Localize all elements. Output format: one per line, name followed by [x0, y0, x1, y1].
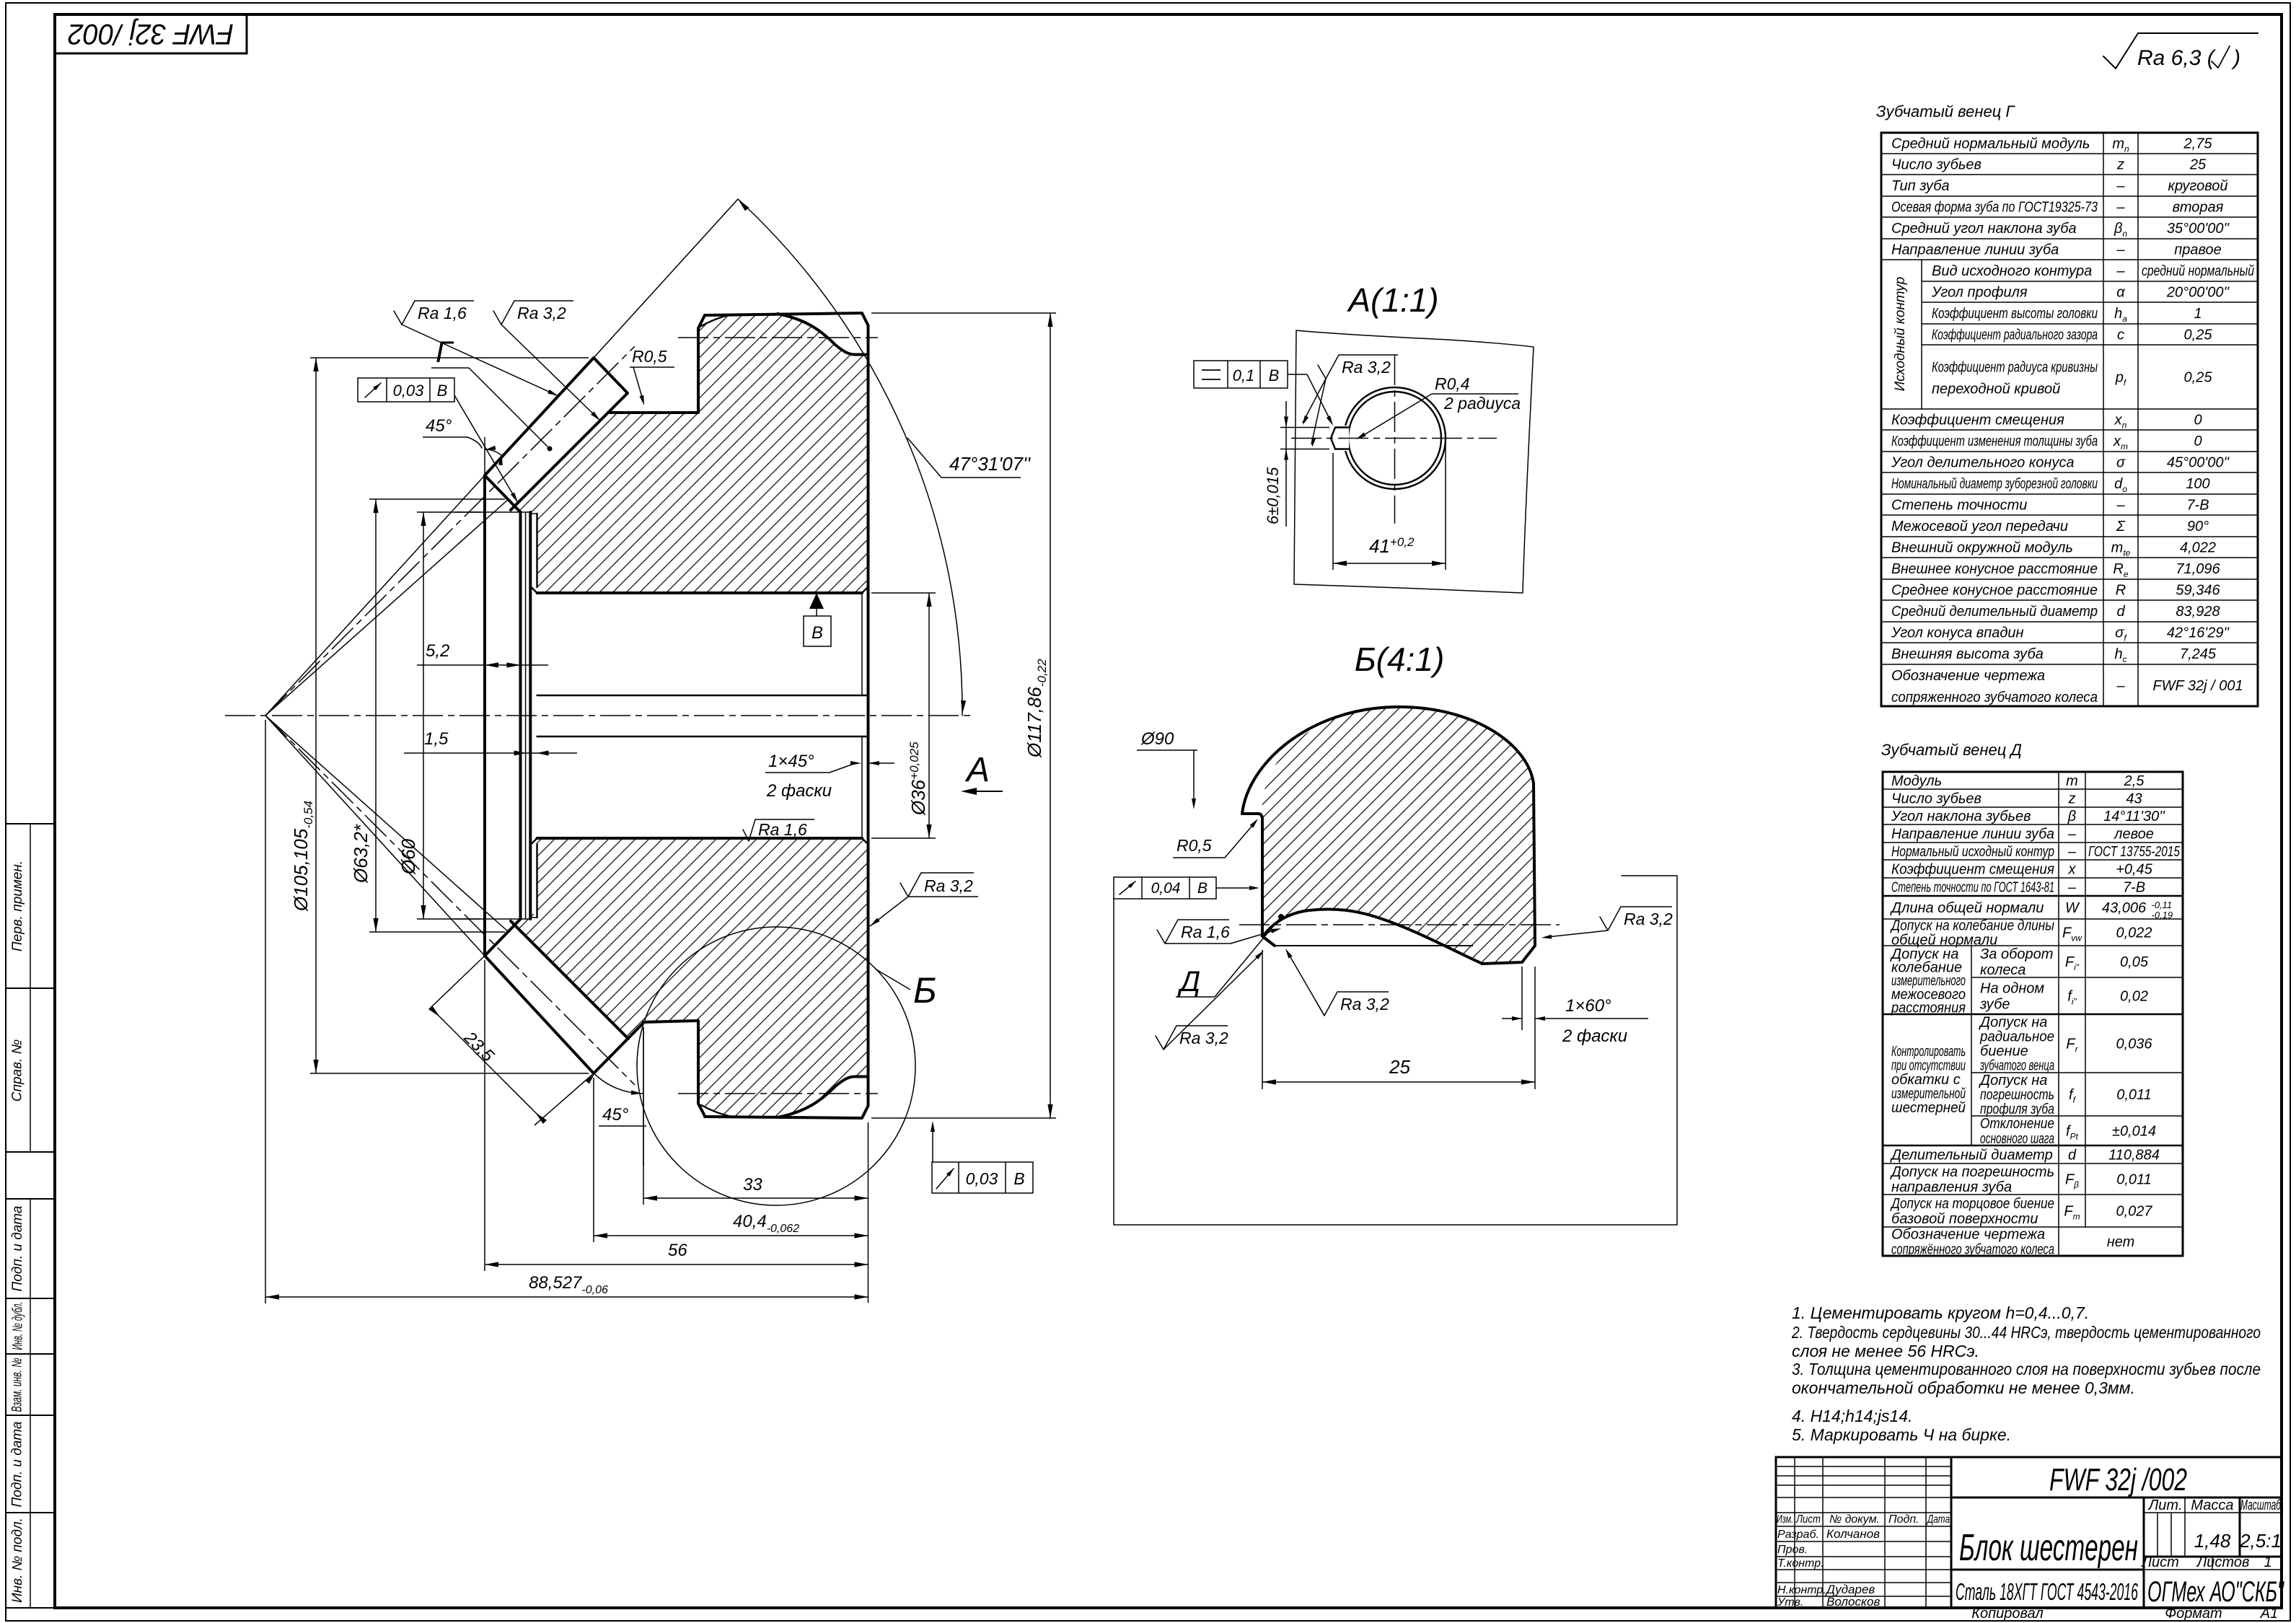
svg-text:45°00'00'': 45°00'00'' — [2167, 455, 2230, 471]
svg-text:Ra 3,2: Ra 3,2 — [1340, 995, 1389, 1013]
svg-text:Допуск на колебание длины: Допуск на колебание длины — [1890, 918, 2054, 934]
svg-text:0,02: 0,02 — [2120, 989, 2148, 1005]
svg-text:Ø90: Ø90 — [1140, 729, 1174, 749]
svg-text:-0,19: -0,19 — [2152, 910, 2173, 920]
svg-text:Ra 1,6: Ra 1,6 — [1181, 923, 1230, 941]
svg-text:FWF 32j / 001: FWF 32j / 001 — [2152, 678, 2243, 694]
svg-text:зубчатого венца: зубчатого венца — [1979, 1058, 2054, 1074]
svg-text:Коэффициент высоты головки: Коэффициент высоты головки — [1932, 306, 2098, 322]
svg-text:43: 43 — [2126, 791, 2142, 807]
svg-text:биение: биение — [1980, 1044, 2028, 1060]
svg-text:2. Твердость сердцевины 30...4: 2. Твердость сердцевины 30...44 HRCэ, тв… — [1791, 1323, 2261, 1342]
svg-text:В: В — [1013, 1169, 1024, 1188]
svg-text:100: 100 — [2186, 476, 2209, 492]
svg-text:Направление линии зуба: Направление линии зуба — [1891, 242, 2059, 258]
svg-text:Н.контр.: Н.контр. — [1777, 1584, 1826, 1596]
svg-text:Колчанов: Колчанов — [1826, 1527, 1880, 1541]
svg-text:6±0,015: 6±0,015 — [1264, 467, 1282, 524]
svg-text:Д: Д — [1177, 966, 1200, 998]
svg-text:–: – — [2067, 827, 2077, 843]
svg-text:Ra 3,2: Ra 3,2 — [1179, 1029, 1228, 1047]
svg-text:нет: нет — [2107, 1234, 2135, 1250]
svg-text:47°31'07'': 47°31'07'' — [949, 453, 1031, 475]
svg-text:25: 25 — [2189, 157, 2207, 173]
svg-text:1,48: 1,48 — [2194, 1530, 2231, 1552]
svg-text:Средний угол наклона зуба: Средний угол наклона зуба — [1891, 221, 2077, 237]
svg-text:90°: 90° — [2187, 519, 2209, 535]
svg-text:Коэффициент радиуса кривизны: Коэффициент радиуса кривизны — [1932, 360, 2098, 376]
svg-text:Средний нормальный модуль: Средний нормальный модуль — [1891, 136, 2090, 152]
svg-text:Коэффициент смещения: Коэффициент смещения — [1891, 413, 2064, 428]
svg-text:33: 33 — [743, 1175, 762, 1195]
svg-text:основного шага: основного шага — [1980, 1131, 2054, 1147]
svg-text:1,5: 1,5 — [424, 729, 449, 749]
svg-text:Допуск на торцовое биение: Допуск на торцовое биение — [1890, 1196, 2054, 1212]
svg-text:профиля зуба: профиля зуба — [1980, 1101, 2054, 1117]
svg-text:4. H14;h14;js14.: 4. H14;h14;js14. — [1792, 1407, 1913, 1425]
svg-text:0: 0 — [2194, 413, 2202, 428]
svg-text:В: В — [1269, 366, 1280, 384]
svg-text:–: – — [2116, 263, 2125, 279]
svg-text:42°16'29'': 42°16'29'' — [2167, 625, 2230, 641]
svg-text:45°: 45° — [602, 1105, 629, 1125]
svg-text:43,006: 43,006 — [2102, 900, 2147, 916]
svg-text:m: m — [2066, 773, 2078, 789]
svg-text:7-В: 7-В — [2123, 880, 2145, 896]
svg-text:шестерней: шестерней — [1891, 1100, 1966, 1116]
svg-text:σ: σ — [2116, 455, 2126, 471]
svg-text:Внешний окружной модуль: Внешний окружной модуль — [1891, 540, 2073, 556]
svg-text:Число зубьев: Число зубьев — [1891, 157, 1981, 173]
svg-text:R: R — [2116, 583, 2126, 599]
svg-text:0,036: 0,036 — [2116, 1037, 2152, 1052]
svg-text:Листов: Листов — [2196, 1554, 2250, 1570]
svg-text:Длина общей нормали: Длина общей нормали — [1890, 900, 2044, 916]
svg-text:Взам. инв. №: Взам. инв. № — [10, 1358, 25, 1412]
svg-text:Формат: Формат — [2165, 1606, 2222, 1622]
svg-text:–: – — [2116, 678, 2125, 694]
svg-text:колеса: колеса — [1980, 962, 2026, 978]
svg-text:d: d — [2116, 604, 2125, 620]
svg-text:Осевая форма зуба по ГОСТ19325: Осевая форма зуба по ГОСТ19325-73 — [1891, 200, 2098, 216]
svg-text:слоя не менее 56 HRCэ.: слоя не менее 56 HRCэ. — [1792, 1342, 1979, 1360]
svg-text:Разраб.: Разраб. — [1777, 1529, 1819, 1541]
svg-text:Инв. № дубл.: Инв. № дубл. — [11, 1302, 26, 1350]
svg-text:Ra 3,2: Ra 3,2 — [1342, 358, 1391, 377]
svg-text:0,04: 0,04 — [1151, 880, 1181, 897]
svg-text:ГОСТ 13755-2015: ГОСТ 13755-2015 — [2088, 844, 2181, 860]
svg-text:1: 1 — [2194, 306, 2202, 322]
svg-text:20°00'00'': 20°00'00'' — [2166, 285, 2230, 301]
svg-text:x: x — [2068, 862, 2077, 878]
svg-text:Внешнее конусное расстояние: Внешнее конусное расстояние — [1891, 561, 2098, 577]
svg-text:сопряжённого зубчатого колеса: сопряжённого зубчатого колеса — [1891, 1242, 2054, 1258]
svg-text:0,011: 0,011 — [2116, 1172, 2152, 1188]
svg-text:Модуль: Модуль — [1891, 773, 1942, 789]
svg-text:Угол наклона зубьев: Угол наклона зубьев — [1891, 809, 2031, 824]
svg-text:FWF 32j /002: FWF 32j /002 — [68, 18, 234, 50]
svg-text:Ra 1,6: Ra 1,6 — [758, 820, 807, 839]
svg-text:расстояния: расстояния — [1891, 1000, 1966, 1016]
svg-text:А: А — [964, 751, 990, 789]
svg-text:1×60°: 1×60° — [1565, 996, 1611, 1016]
svg-text:R0,5: R0,5 — [1176, 836, 1212, 855]
svg-text:0,1: 0,1 — [1233, 366, 1255, 384]
svg-text:Ra 3,2: Ra 3,2 — [517, 304, 566, 322]
svg-text:Коэффициент смещения: Коэффициент смещения — [1891, 862, 2054, 878]
svg-text:Волосков: Волосков — [1826, 1595, 1880, 1609]
svg-text:7,245: 7,245 — [2180, 646, 2217, 662]
svg-text:0: 0 — [2194, 434, 2202, 449]
svg-text:Ra 3,2: Ra 3,2 — [1624, 910, 1673, 928]
svg-text:Угол профиля: Угол профиля — [1931, 285, 2028, 301]
svg-text:На одном: На одном — [1980, 981, 2044, 997]
svg-text:В: В — [437, 382, 448, 400]
svg-text:83,928: 83,928 — [2176, 604, 2220, 620]
svg-text:окончательной обработки не мен: окончательной обработки не менее 0,3мм. — [1792, 1378, 2135, 1397]
svg-text:Коэффициент изменения толщины: Коэффициент изменения толщины зуба — [1891, 434, 2098, 449]
svg-text:2 фаски: 2 фаски — [766, 781, 832, 801]
svg-text:110,884: 110,884 — [2108, 1148, 2160, 1164]
svg-text:–: – — [2116, 498, 2125, 514]
svg-text:Ra 1,6: Ra 1,6 — [418, 304, 467, 322]
svg-text:Зубчатый венец Д: Зубчатый венец Д — [1881, 741, 2022, 759]
svg-text:Σ: Σ — [2116, 519, 2126, 535]
svg-text:Дата: Дата — [1927, 1513, 1950, 1526]
svg-text:Справ. №: Справ. № — [10, 1039, 25, 1101]
svg-text:Межосевой угол передачи: Межосевой угол передачи — [1891, 519, 2068, 535]
svg-text:0,027: 0,027 — [2116, 1204, 2152, 1220]
svg-text:α: α — [2116, 285, 2125, 301]
svg-text:Исходный контур: Исходный контур — [1893, 277, 1908, 392]
svg-text:За оборот: За оборот — [1980, 946, 2053, 962]
svg-text:5. Маркировать Ч на бирке.: 5. Маркировать Ч на бирке. — [1792, 1425, 2011, 1444]
svg-text:Т.контр.: Т.контр. — [1777, 1557, 1824, 1570]
svg-text:1×45°: 1×45° — [768, 752, 814, 771]
svg-text:Вид исходного контура: Вид исходного контура — [1932, 263, 2092, 279]
svg-text:0,25: 0,25 — [2184, 370, 2213, 386]
svg-text:Ø63,2*: Ø63,2* — [350, 824, 371, 884]
svg-text:β: β — [2067, 809, 2076, 824]
svg-text:25: 25 — [1389, 1056, 1410, 1078]
svg-text:Число зубьев: Число зубьев — [1891, 791, 1981, 807]
svg-text:Степень точности: Степень точности — [1891, 498, 2027, 514]
svg-text:Угол делительного конуса: Угол делительного конуса — [1891, 455, 2074, 471]
svg-text:59,346: 59,346 — [2176, 583, 2220, 599]
svg-text:базовой поверхности: базовой поверхности — [1891, 1211, 2038, 1227]
svg-text:0,03: 0,03 — [966, 1169, 998, 1188]
svg-text:А1: А1 — [2260, 1606, 2278, 1622]
svg-text:0,03: 0,03 — [393, 382, 425, 400]
svg-text:FWF 32j /002: FWF 32j /002 — [2049, 1462, 2187, 1497]
svg-text:2 радиуса: 2 радиуса — [1443, 394, 1521, 413]
svg-text:56: 56 — [668, 1241, 687, 1260]
svg-text:погрешность: погрешность — [1980, 1087, 2054, 1103]
svg-text:W: W — [2065, 900, 2080, 916]
svg-text:Зубчатый венец Г: Зубчатый венец Г — [1876, 102, 2015, 120]
svg-text:0,022: 0,022 — [2116, 925, 2152, 941]
svg-text:В: В — [811, 623, 823, 643]
svg-text:7-В: 7-В — [2186, 498, 2209, 514]
svg-text:1. Цементировать кругом h=0,4.: 1. Цементировать кругом h=0,4...0,7. — [1792, 1303, 2089, 1322]
svg-text:Перв. примен.: Перв. примен. — [10, 861, 25, 951]
svg-text:Ø60: Ø60 — [397, 838, 419, 875]
svg-text:Обозначение чертежа: Обозначение чертежа — [1891, 1227, 2045, 1243]
svg-text:Делительный диаметр: Делительный диаметр — [1890, 1148, 2053, 1164]
svg-text:0,05: 0,05 — [2120, 954, 2149, 970]
svg-text:z: z — [2116, 157, 2124, 173]
svg-text:d: d — [2068, 1148, 2077, 1164]
svg-text:Направление линии зуба: Направление линии зуба — [1891, 827, 2054, 843]
svg-text:c: c — [2117, 327, 2124, 343]
svg-text:переходной кривой: переходной кривой — [1932, 382, 2060, 397]
svg-text:z: z — [2068, 791, 2076, 807]
svg-text:–: – — [2116, 242, 2125, 258]
svg-text:14°11'30'': 14°11'30'' — [2103, 809, 2165, 824]
svg-text:Масса: Масса — [2191, 1497, 2233, 1513]
svg-text:сопряженного зубчатого колеса: сопряженного зубчатого колеса — [1891, 690, 2098, 705]
svg-text:–: – — [2067, 844, 2077, 860]
svg-text:0,25: 0,25 — [2184, 327, 2213, 343]
svg-text:В: В — [1197, 880, 1208, 897]
svg-text:Б: Б — [913, 970, 937, 1011]
svg-text:±0,014: ±0,014 — [2112, 1124, 2156, 1140]
svg-text:Лист: Лист — [1795, 1513, 1821, 1526]
svg-text:ОГМех АО"СКБ": ОГМех АО"СКБ" — [2147, 1576, 2284, 1608]
svg-text:+0,45: +0,45 — [2116, 862, 2152, 878]
svg-text:0,011: 0,011 — [2116, 1087, 2152, 1103]
svg-text:А(1:1): А(1:1) — [1346, 281, 1438, 319]
svg-text:Допуск на погрешность: Допуск на погрешность — [1890, 1164, 2054, 1180]
svg-text:Ra 3,2: Ra 3,2 — [924, 876, 973, 895]
svg-text:Степень точности по ГОСТ 1643-: Степень точности по ГОСТ 1643-81 — [1891, 880, 2054, 896]
svg-text:Б(4:1): Б(4:1) — [1355, 641, 1445, 678]
svg-text:Допуск на: Допуск на — [1979, 1015, 2047, 1031]
svg-text:Обозначение чертежа: Обозначение чертежа — [1891, 668, 2045, 684]
svg-text:Ra 6,3 (: Ra 6,3 ( — [2137, 46, 2217, 70]
svg-text:Лит.: Лит. — [2147, 1497, 2183, 1513]
svg-text:правое: правое — [2174, 242, 2222, 258]
svg-text:R0,4: R0,4 — [1435, 374, 1470, 393]
svg-text:Тип зуба: Тип зуба — [1891, 178, 1950, 194]
svg-text:зубе: зубе — [1979, 997, 2010, 1013]
svg-text:левое: левое — [2114, 827, 2154, 843]
svg-text:радиальное: радиальное — [1979, 1029, 2054, 1045]
svg-text:71,096: 71,096 — [2176, 561, 2220, 577]
svg-text:Подп. и дата: Подп. и дата — [10, 1422, 25, 1508]
svg-text:№ докум.: № докум. — [1829, 1513, 1880, 1526]
svg-text:Номинальный диаметр зуборезной: Номинальный диаметр зуборезной головки — [1891, 476, 2098, 492]
svg-text:Лист: Лист — [2140, 1554, 2179, 1570]
svg-text:5,2: 5,2 — [426, 641, 449, 661]
svg-text:Коэффициент радиального зазора: Коэффициент радиального зазора — [1932, 327, 2098, 343]
svg-text:Г: Г — [436, 335, 454, 369]
svg-text:–: – — [2116, 178, 2125, 194]
svg-text:средний нормальный: средний нормальный — [2142, 263, 2254, 279]
svg-text:4,022: 4,022 — [2180, 540, 2216, 556]
svg-text:Изм.: Изм. — [1777, 1513, 1793, 1526]
svg-text:2,75: 2,75 — [2183, 136, 2213, 152]
svg-text:Масштаб: Масштаб — [2240, 1497, 2281, 1513]
svg-text:Блок шестерен: Блок шестерен — [1959, 1527, 2138, 1569]
svg-text:3. Толщина цементированного сл: 3. Толщина цементированного слоя на пове… — [1792, 1360, 2261, 1378]
svg-text:–: – — [2067, 880, 2077, 896]
svg-text:1: 1 — [2264, 1554, 2271, 1570]
svg-text:2 фаски: 2 фаски — [1562, 1026, 1627, 1046]
svg-text:Допуск на: Допуск на — [1979, 1073, 2047, 1088]
svg-text:Внешняя высота зуба: Внешняя высота зуба — [1891, 646, 2044, 662]
svg-text:Средний делительный диаметр: Средний делительный диаметр — [1891, 604, 2098, 620]
svg-text:Подп.: Подп. — [1888, 1513, 1919, 1526]
svg-text:Подп. и дата: Подп. и дата — [10, 1206, 25, 1292]
svg-text:2,5: 2,5 — [2124, 773, 2145, 789]
svg-text:Утв.: Утв. — [1777, 1596, 1803, 1609]
svg-text:круговой: круговой — [2168, 178, 2228, 194]
svg-text:Копировал: Копировал — [1971, 1606, 2043, 1622]
svg-text:направления зуба: направления зуба — [1891, 1179, 2012, 1195]
svg-text:45°: 45° — [426, 416, 452, 436]
svg-text:вторая: вторая — [2173, 200, 2224, 216]
svg-text:Пров.: Пров. — [1777, 1544, 1808, 1556]
svg-text:R0,5: R0,5 — [632, 347, 667, 366]
svg-text:Отклонение: Отклонение — [1980, 1116, 2054, 1132]
svg-text:35°00'00'': 35°00'00'' — [2167, 221, 2230, 237]
svg-text:Сталь 18ХГТ ГОСТ 4543-2016: Сталь 18ХГТ ГОСТ 4543-2016 — [1956, 1578, 2138, 1605]
svg-text:Угол конуса впадин: Угол конуса впадин — [1891, 625, 2024, 641]
svg-text:Инв. № подл.: Инв. № подл. — [10, 1518, 25, 1603]
svg-text:Среднее конусное расстояние: Среднее конусное расстояние — [1891, 583, 2098, 599]
svg-text:2,5:1: 2,5:1 — [2239, 1530, 2282, 1552]
svg-text:–: – — [2116, 200, 2125, 216]
svg-text:Нормальный исходный контур: Нормальный исходный контур — [1891, 844, 2054, 860]
svg-text:-0,11: -0,11 — [2152, 900, 2173, 910]
